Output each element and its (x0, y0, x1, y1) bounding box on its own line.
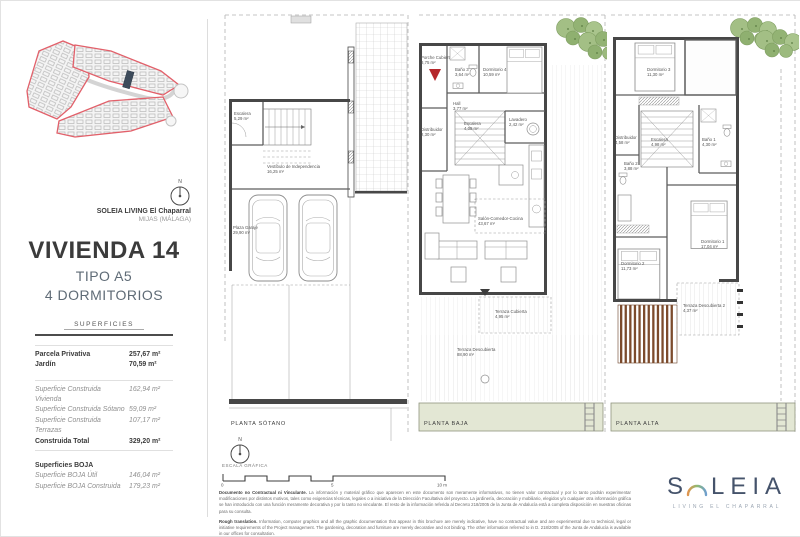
sink-icon (453, 83, 463, 89)
shower-icon (701, 109, 716, 122)
disclaimer-text-en: Information, computer graphics and all t… (219, 519, 631, 536)
stair-sotano (263, 109, 311, 163)
room-area: 3,88 m² (624, 166, 639, 171)
disclaimer-title-es: Documento no Contractual ni Vinculante. (219, 490, 307, 495)
page-title: VIVIENDA 14 (1, 237, 207, 265)
plan-name: PLANTA SÓTANO (231, 420, 286, 427)
site-parcel-bottom (57, 97, 173, 137)
floorplan-alta: Dormitorio 3 11,30 m² Distribuidor 4,58 … (609, 13, 799, 441)
car-2 (299, 195, 337, 281)
surfaces-header: SUPERFICIES (64, 321, 144, 330)
room-area: 2,42 m² (509, 122, 524, 127)
toilet-icon (619, 173, 627, 184)
north-label: N (238, 437, 242, 443)
kitchen-island (499, 165, 523, 185)
stair-baja (455, 111, 505, 165)
surface-row: Superficie BOJA Útil 146,04 m² (35, 471, 173, 481)
surface-row: Superficie Construida Terrazas 107,17 m² (35, 416, 173, 437)
room-area: 29,90 m² (233, 230, 251, 235)
surface-row: Superficie BOJA Construida 179,23 m² (35, 482, 173, 492)
unit-bedrooms: 4 DORMITORIOS (1, 287, 207, 303)
project-location: MIJAS (MÁLAGA) (19, 216, 191, 225)
wardrobe (639, 97, 679, 105)
north-compass-icon: N (167, 177, 193, 209)
room-area: 16,25 m² (267, 169, 285, 174)
surface-row: Superficie Construida Vivienda 162,94 m² (35, 385, 173, 406)
washer-icon (527, 123, 539, 135)
graphic-scale-bar: 0 5 10 m (221, 469, 453, 487)
scale-tick-10: 10 m (437, 483, 447, 488)
vegetation (579, 32, 608, 60)
wardrobe (617, 225, 649, 233)
room-area: 4,30 m² (702, 142, 717, 147)
planter-icon (481, 375, 489, 383)
room-area: 8,75 m² (421, 60, 436, 65)
room-area: 4,08 m² (464, 126, 479, 131)
plan-name: PLANTA ALTA (616, 421, 659, 427)
room-area: 17,04 m² (701, 244, 719, 249)
logo-text-right: LEIA (711, 473, 787, 501)
patio-grid (356, 23, 407, 191)
kitchen-counter (529, 145, 544, 227)
surface-row: Superficie Construida Sótano 59,09 m² (35, 405, 173, 415)
disclaimer-title-en: Rough translation. (219, 519, 257, 524)
room-area: 3,77 m² (453, 106, 468, 111)
north-label: N (178, 179, 182, 185)
plan-name: PLANTA BAJA (424, 421, 468, 427)
surface-row: Parcela Privativa 257,67 m² (35, 350, 173, 360)
scale-tick-5: 5 (331, 483, 334, 488)
dimension-tag (291, 16, 311, 23)
room-area: 4,37 m² (683, 308, 698, 313)
room-area: 4,95 m² (495, 314, 510, 319)
toilet-icon (723, 125, 731, 136)
legal-disclaimer: Documento no Contractual ni Vinculante. … (219, 490, 631, 537)
unit-type: TIPO A5 (1, 268, 207, 284)
car-1 (249, 195, 287, 281)
vegetation (756, 30, 800, 58)
room-area: 11,73 m² (621, 266, 638, 271)
sidebar-divider (207, 19, 208, 517)
bed (618, 249, 660, 299)
brand-logo: S LEIA LIVING EL CHAPARRAL (659, 473, 795, 510)
surfaces-rule (35, 334, 173, 336)
room-area: 88,90 m² (457, 352, 475, 357)
bathtub-icon (618, 195, 631, 221)
room-area: 4,98 m² (651, 142, 666, 147)
bed (507, 47, 542, 93)
site-location-map (13, 29, 197, 171)
floorplan-baja: Porche Cubierto 8,75 m² Baño 3 3,64 m² D… (417, 13, 607, 441)
room-area: 11,30 m² (647, 72, 664, 77)
sofa-set (425, 233, 527, 282)
sink-icon (721, 161, 731, 167)
room-area: 4,58 m² (615, 140, 630, 145)
brochure-page: N SOLEIA LIVING El Chaparral MIJAS (MÁLA… (0, 0, 800, 537)
room-area: 5,29 m² (234, 116, 249, 121)
surface-row: Superficies BOJA (35, 461, 173, 471)
scale-label: ESCALA GRÁFICA (222, 463, 268, 468)
room-area: 2,30 m² (421, 132, 436, 137)
surfaces-panel: SUPERFICIES Parcela Privativa 257,67 m² … (35, 313, 173, 492)
toilet-icon (469, 65, 477, 76)
surface-row: Jardín 70,59 m² (35, 360, 173, 370)
room-area: 3,64 m² (455, 72, 470, 77)
scale-tick-0: 0 (221, 483, 224, 488)
room-area: 10,59 m² (483, 72, 501, 77)
shower-icon (450, 47, 465, 60)
entrance-marker (429, 69, 441, 81)
logo-tagline: LIVING EL CHAPARRAL (659, 504, 795, 510)
logo-sun-arc-icon (685, 477, 709, 499)
floorplan-sotano: Escalera 5,29 m² Vestíbulo de Independen… (219, 13, 411, 441)
surface-row: Construida Total 329,20 m² (35, 437, 173, 447)
room-area: 43,67 m² (478, 221, 496, 226)
pergola-slats (618, 305, 677, 363)
dining-table (436, 175, 476, 223)
